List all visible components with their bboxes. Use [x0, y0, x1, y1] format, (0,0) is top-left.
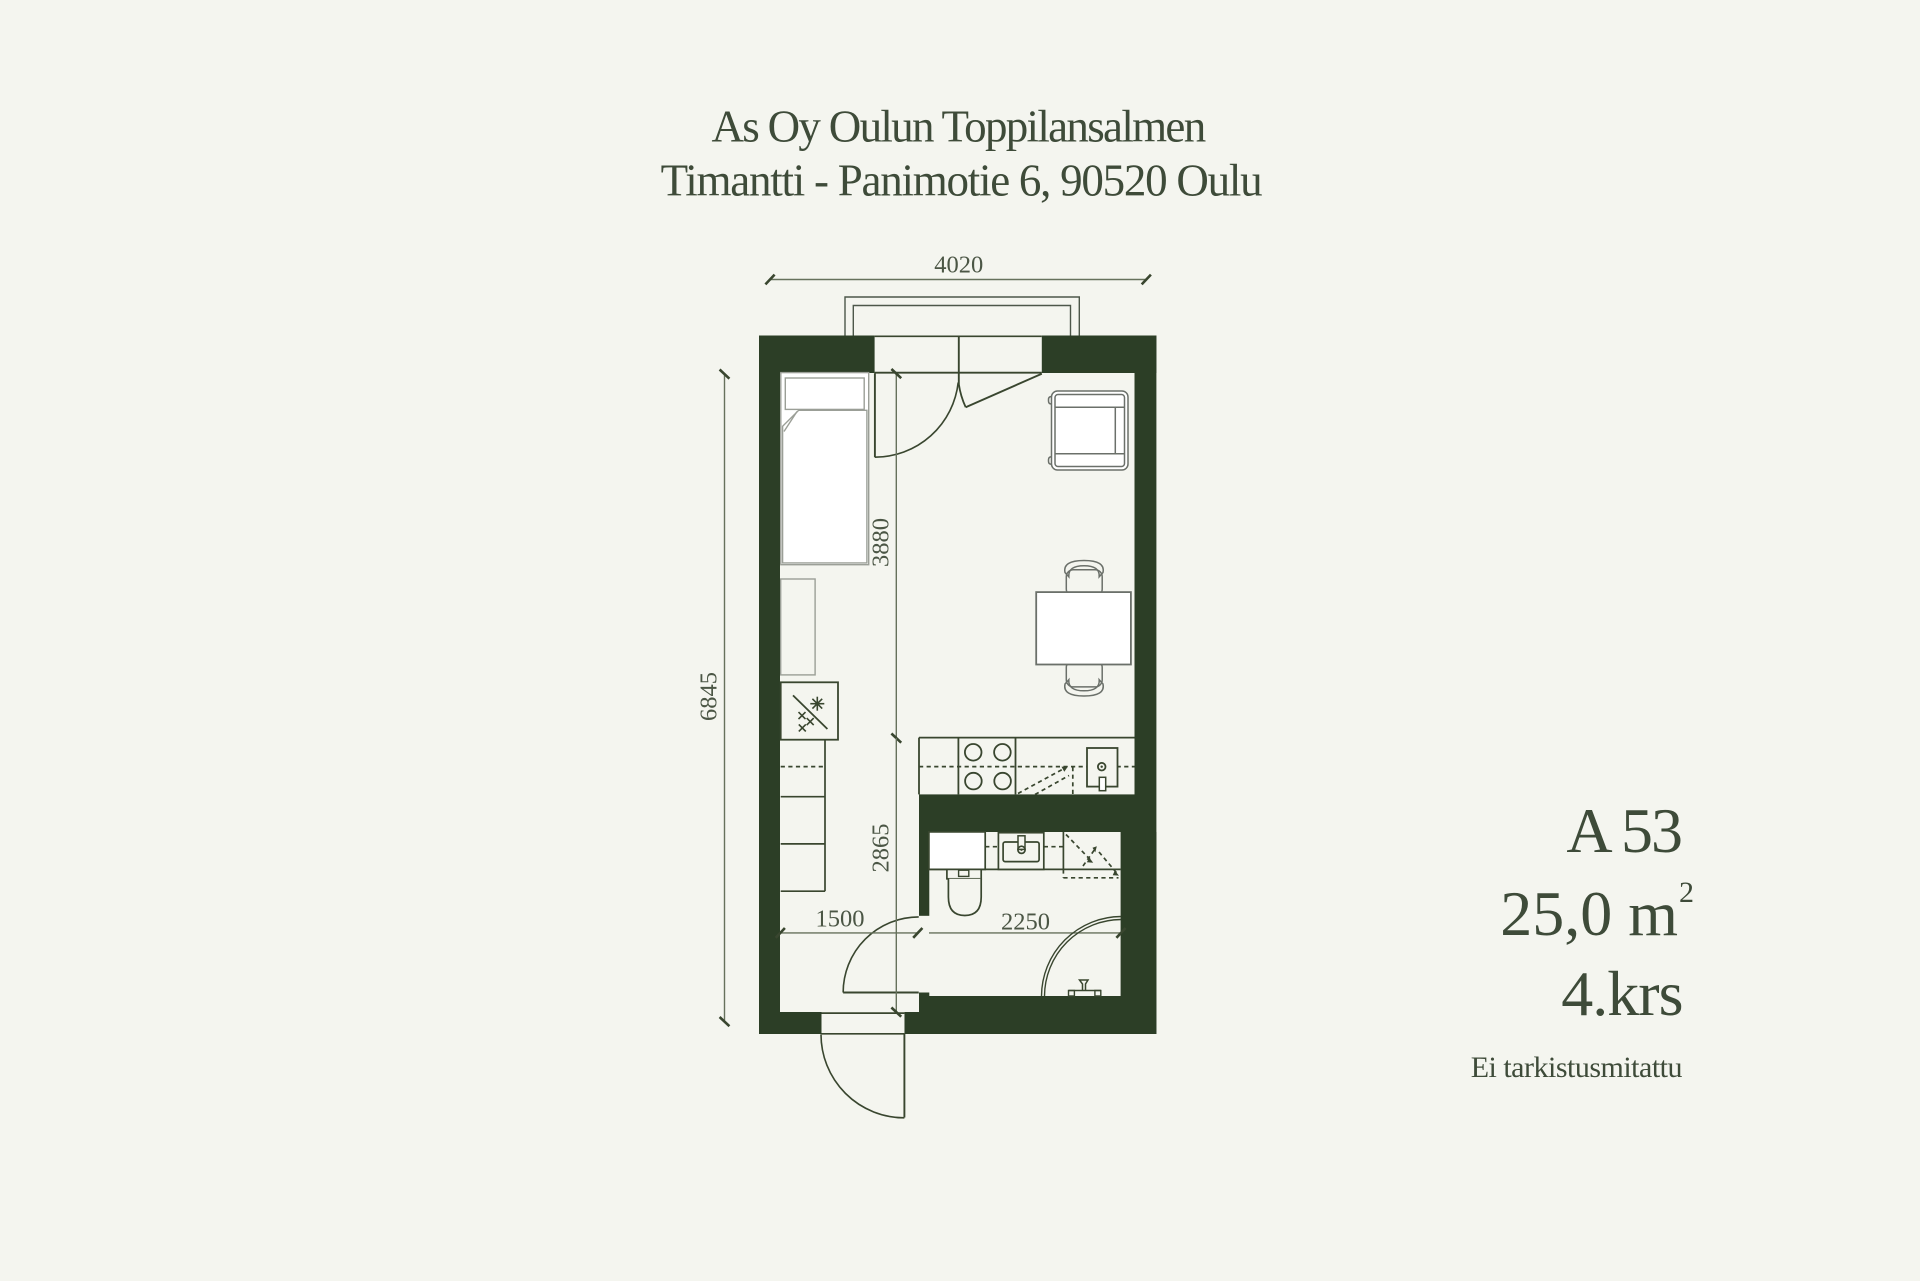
svg-text:6845: 6845: [696, 672, 723, 721]
svg-text:2250: 2250: [1001, 909, 1050, 936]
svg-text:As Oy Oulun Toppilansalmen: As Oy Oulun Toppilansalmen: [711, 102, 1205, 152]
svg-text:2: 2: [1679, 876, 1694, 909]
svg-text:3880: 3880: [868, 518, 895, 567]
svg-text:4.krs: 4.krs: [1561, 958, 1682, 1029]
svg-text:25,0 m: 25,0 m: [1500, 878, 1678, 949]
svg-text:Ei tarkistusmitattu: Ei tarkistusmitattu: [1471, 1051, 1683, 1084]
svg-text:A 53: A 53: [1566, 795, 1681, 866]
svg-text:4020: 4020: [934, 252, 983, 279]
svg-text:Timantti - Panimotie 6, 90520: Timantti - Panimotie 6, 90520 Oulu: [661, 156, 1263, 206]
svg-text:2865: 2865: [868, 824, 895, 873]
svg-text:1500: 1500: [816, 906, 865, 933]
